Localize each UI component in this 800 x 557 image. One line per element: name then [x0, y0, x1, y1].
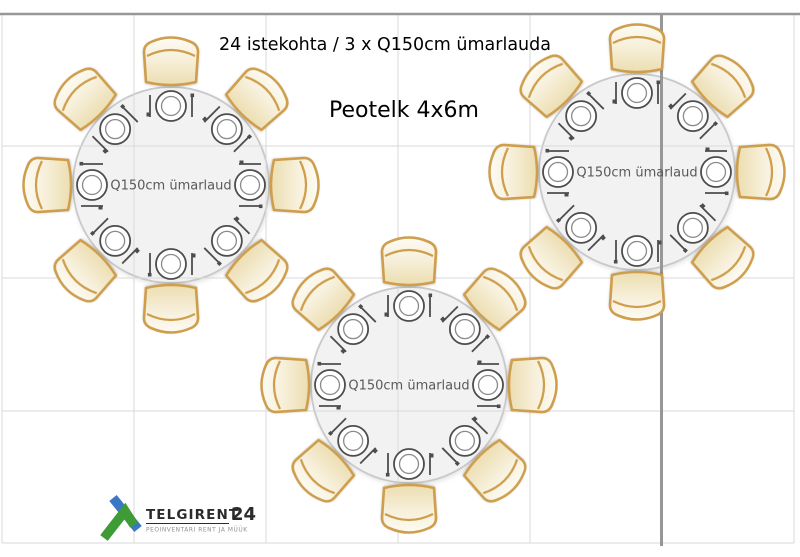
table-group-right: Q150cm ümarlaud	[490, 25, 785, 320]
table-group-bottom: Q150cm ümarlaud	[262, 238, 557, 533]
chair	[271, 158, 319, 212]
logo: TELGIRENT 24 PEOINVENTARI RENT JA MÜÜK	[104, 498, 256, 538]
chair	[144, 38, 198, 86]
logo-tagline-text: PEOINVENTARI RENT JA MÜÜK	[146, 527, 248, 534]
table-label-right: Q150cm ümarlaud	[576, 166, 697, 181]
logo-number-text: 24	[231, 504, 256, 525]
floor-plan: Q150cm ümarlaudQ150cm ümarlaudQ150cm üma…	[0, 0, 800, 557]
chair	[24, 158, 72, 212]
plan-title: 24 istekohta / 3 x Q150cm ümarlauda	[219, 35, 551, 55]
chair	[490, 145, 538, 199]
logo-brand-text: TELGIRENT	[146, 507, 239, 523]
table-label-bottom: Q150cm ümarlaud	[348, 379, 469, 394]
chair	[610, 272, 664, 320]
chair	[382, 238, 436, 286]
chair	[144, 285, 198, 333]
plan-subtitle: Peotelk 4x6m	[329, 98, 479, 123]
chair	[262, 358, 310, 412]
chair	[382, 485, 436, 533]
chair	[610, 25, 664, 73]
chair	[509, 358, 557, 412]
logo-mark-green-icon	[104, 511, 134, 538]
table-label-left: Q150cm ümarlaud	[110, 179, 231, 194]
chair	[737, 145, 785, 199]
table-group-left: Q150cm ümarlaud	[24, 38, 319, 333]
